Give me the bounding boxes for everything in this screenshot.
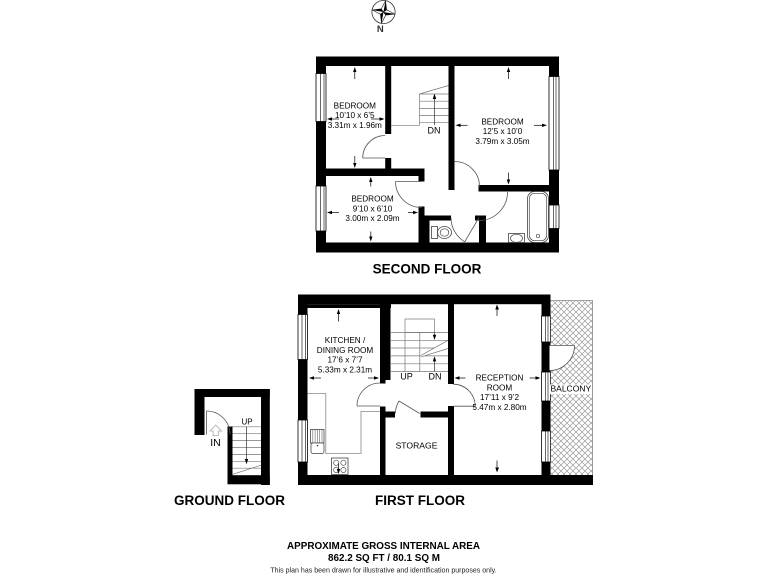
svg-text:KITCHEN /: KITCHEN /: [325, 336, 366, 345]
svg-text:3.31m x 1.96m: 3.31m x 1.96m: [328, 121, 382, 130]
svg-text:BEDROOM: BEDROOM: [334, 101, 376, 110]
svg-text:FIRST FLOOR: FIRST FLOOR: [375, 493, 465, 508]
svg-text:DN: DN: [429, 372, 442, 382]
svg-text:ROOM: ROOM: [487, 383, 513, 392]
svg-text:5.33m x 2.31m: 5.33m x 2.31m: [318, 365, 372, 374]
svg-text:DN: DN: [428, 126, 441, 136]
svg-text:BEDROOM: BEDROOM: [481, 117, 523, 126]
svg-text:N: N: [377, 24, 384, 35]
svg-text:BALCONY: BALCONY: [550, 384, 591, 394]
svg-text:RECEPTION: RECEPTION: [476, 374, 524, 383]
svg-text:17’11 x 9’2: 17’11 x 9’2: [480, 393, 519, 402]
svg-text:9’10 x 6’10: 9’10 x 6’10: [353, 204, 393, 213]
svg-text:5.47m x 2.80m: 5.47m x 2.80m: [472, 403, 526, 412]
svg-text:UP: UP: [241, 418, 252, 427]
svg-text:APPROXIMATE GROSS INTERNAL ARE: APPROXIMATE GROSS INTERNAL AREA: [287, 541, 480, 552]
svg-text:3.00m x 2.09m: 3.00m x 2.09m: [345, 214, 399, 223]
svg-text:12’5 x 10’0: 12’5 x 10’0: [483, 127, 523, 136]
svg-text:BEDROOM: BEDROOM: [351, 195, 393, 204]
svg-text:This plan has been drawn for i: This plan has been drawn for illustrativ…: [270, 568, 496, 575]
svg-text:GROUND FLOOR: GROUND FLOOR: [174, 493, 285, 508]
svg-text:10’10 x 6’5: 10’10 x 6’5: [335, 111, 375, 120]
svg-text:862.2 SQ FT / 80.1 SQ M: 862.2 SQ FT / 80.1 SQ M: [328, 553, 440, 564]
svg-text:STORAGE: STORAGE: [396, 440, 438, 450]
svg-text:SECOND FLOOR: SECOND FLOOR: [373, 262, 482, 277]
svg-text:DINING ROOM: DINING ROOM: [317, 346, 374, 355]
svg-text:IN: IN: [210, 437, 221, 449]
svg-text:3.79m x 3.05m: 3.79m x 3.05m: [475, 137, 529, 146]
svg-text:UP: UP: [400, 372, 413, 382]
svg-text:17’6 x 7’7: 17’6 x 7’7: [327, 356, 362, 365]
